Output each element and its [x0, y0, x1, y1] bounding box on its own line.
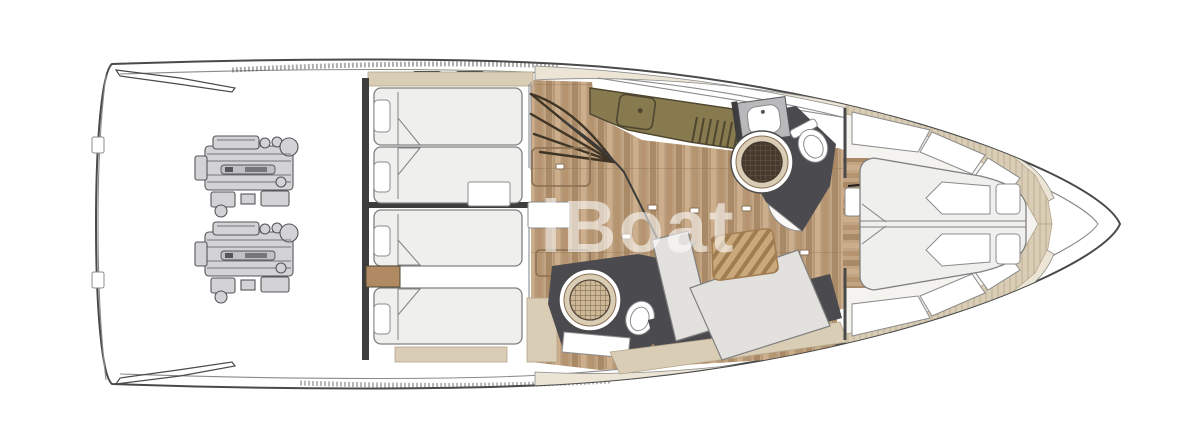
berth-3	[374, 210, 522, 266]
shower-forward	[731, 131, 793, 193]
transom-fitting-bottom	[92, 272, 104, 288]
aft-cabin-shelf-top	[368, 72, 533, 86]
nightstand	[374, 162, 390, 192]
bed-runner	[468, 182, 510, 206]
bow-floor-hatch	[845, 188, 861, 216]
nightstand	[374, 226, 390, 256]
watermark-text: iBoat	[541, 185, 736, 268]
aft-cabin-shelf-bottom	[395, 347, 507, 362]
nightstand	[374, 100, 390, 132]
hatch-latch	[556, 164, 564, 169]
nightstand	[374, 304, 390, 334]
berth-1	[374, 88, 522, 145]
shower-grate-icon	[742, 142, 782, 182]
dresser	[366, 266, 400, 287]
bow-cabin	[843, 96, 1052, 352]
berth-4	[374, 288, 522, 344]
yacht-floor-plan: iBoat	[0, 0, 1200, 433]
floor-plan-drawing: iBoat	[0, 0, 1200, 433]
head-cushion	[996, 234, 1020, 264]
head-cushion	[996, 184, 1020, 214]
shower-grate-icon	[570, 280, 610, 320]
shower-mid	[559, 269, 621, 331]
transom-fitting-top	[92, 137, 104, 153]
engine-room-bulkhead	[362, 78, 369, 360]
